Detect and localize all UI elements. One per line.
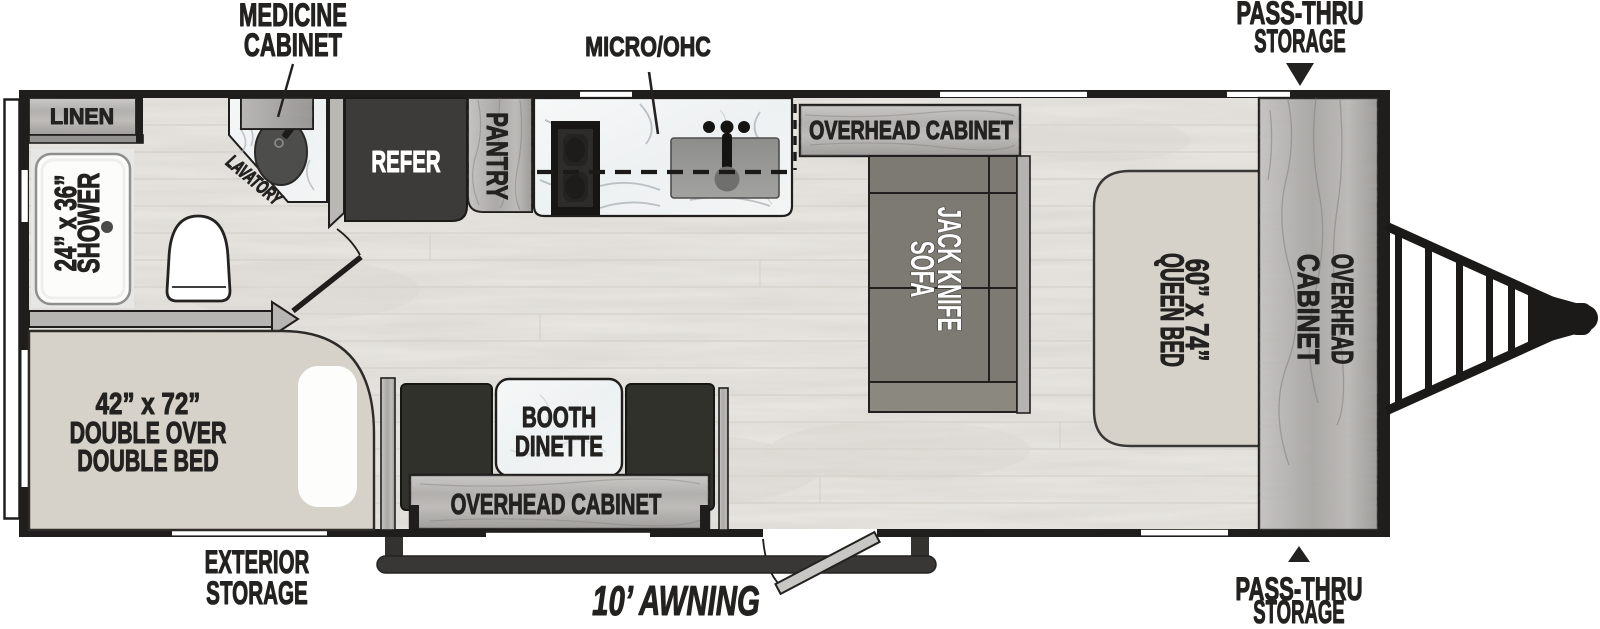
svg-text:SHOWER: SHOWER — [71, 173, 105, 273]
svg-text:OVERHEAD CABINET: OVERHEAD CABINET — [809, 115, 1013, 144]
svg-text:MICRO/OHC: MICRO/OHC — [585, 31, 711, 62]
svg-text:LINEN: LINEN — [50, 104, 114, 129]
svg-text:PANTRY: PANTRY — [480, 112, 514, 200]
svg-text:BOOTH: BOOTH — [522, 402, 596, 434]
svg-text:OVERHEAD CABINET: OVERHEAD CABINET — [451, 489, 662, 521]
svg-text:10’ AWNING: 10’ AWNING — [592, 577, 760, 625]
svg-text:REFER: REFER — [371, 144, 440, 179]
svg-text:STORAGE: STORAGE — [1253, 594, 1344, 629]
svg-text:CABINET: CABINET — [1291, 254, 1325, 364]
svg-text:OVERHEAD: OVERHEAD — [1325, 254, 1359, 365]
svg-text:STORAGE: STORAGE — [206, 575, 308, 611]
svg-text:QUEEN BED: QUEEN BED — [1154, 253, 1190, 367]
svg-text:DOUBLE BED: DOUBLE BED — [77, 443, 218, 478]
svg-text:SOFA: SOFA — [904, 241, 941, 298]
svg-text:DINETTE: DINETTE — [515, 431, 603, 463]
svg-text:STORAGE: STORAGE — [1254, 23, 1345, 60]
svg-text:CABINET: CABINET — [244, 27, 342, 63]
